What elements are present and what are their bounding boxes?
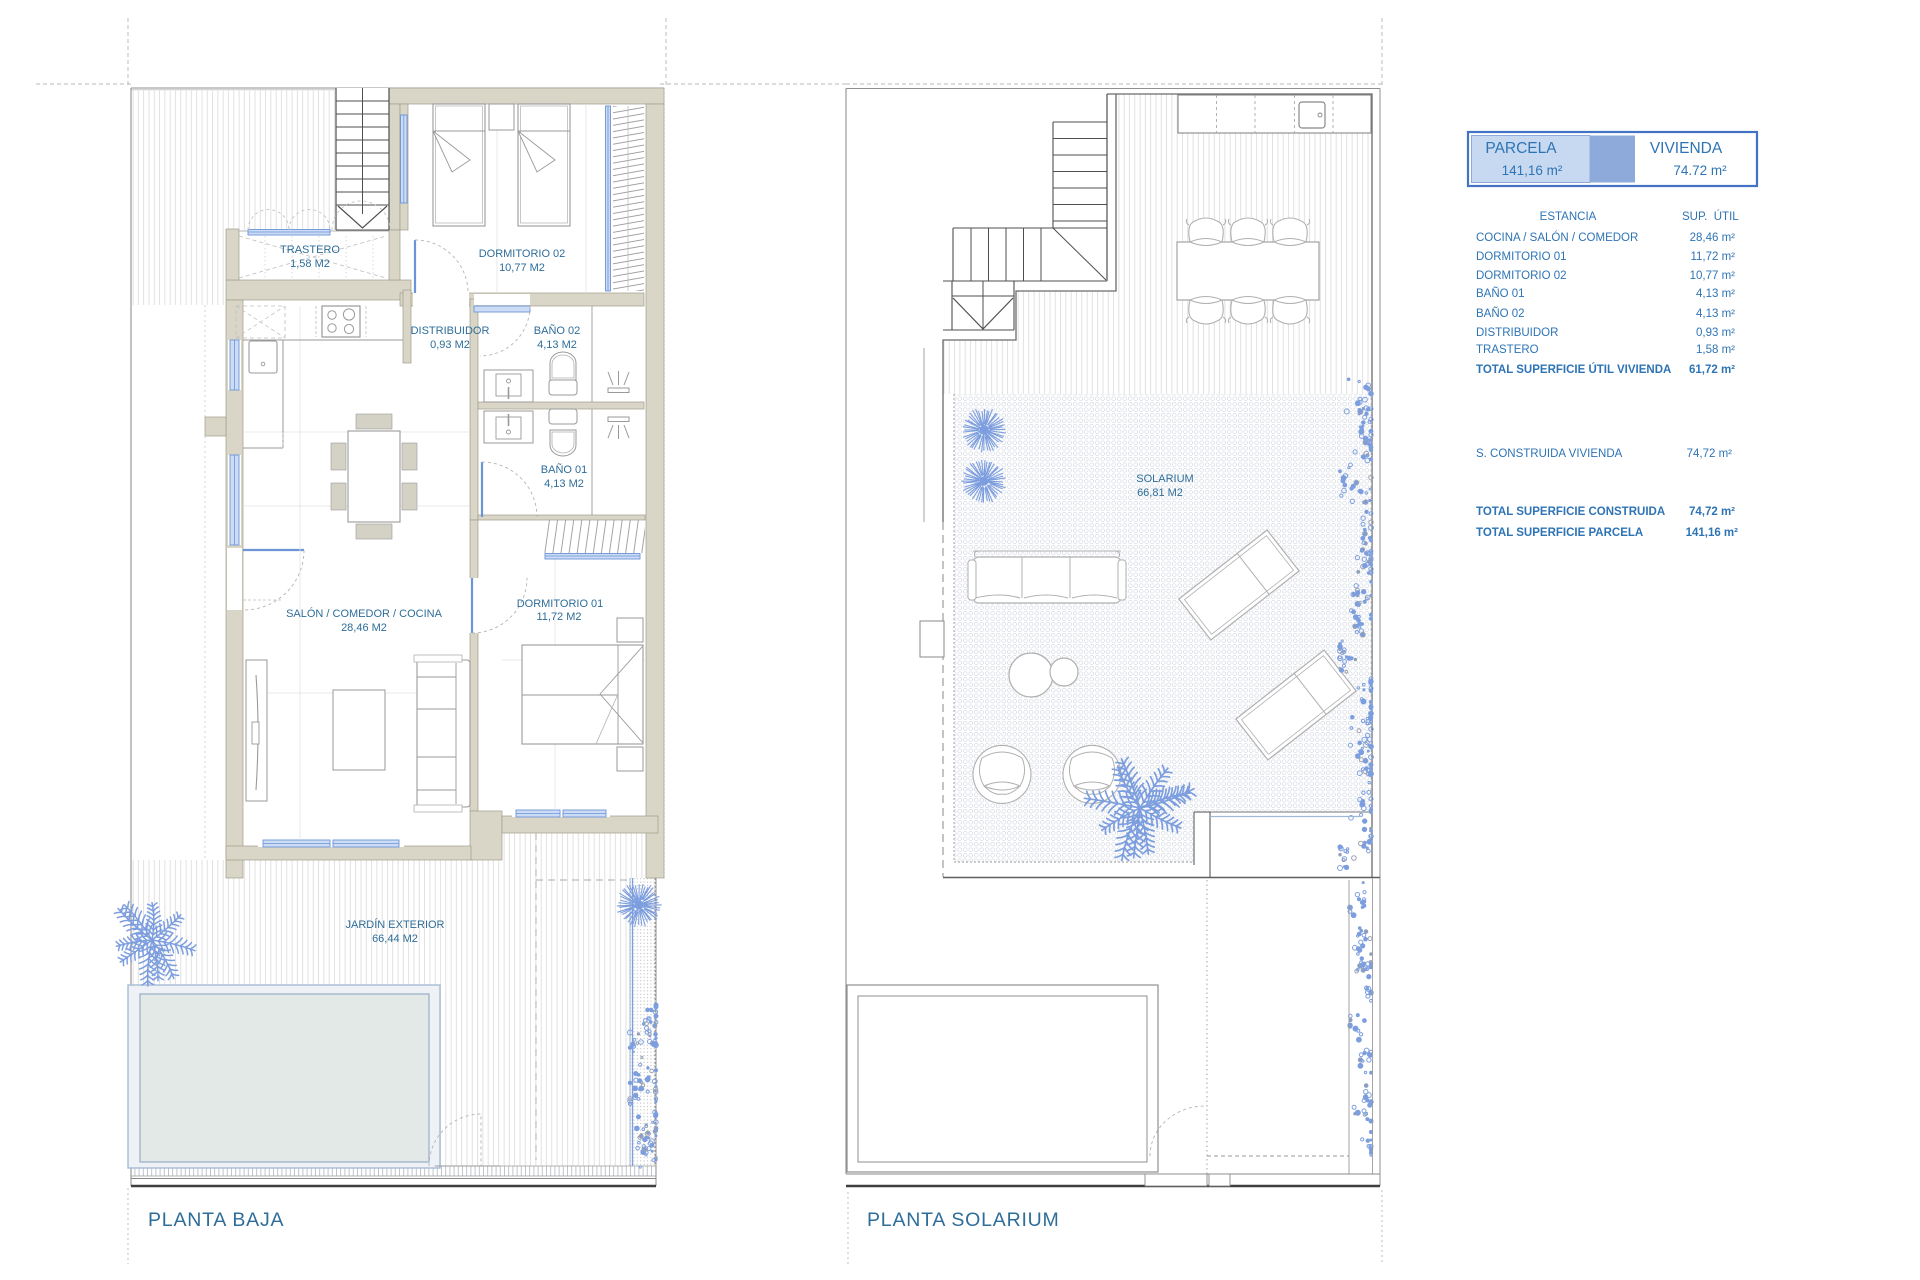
svg-text:BAÑO 02: BAÑO 02: [1476, 307, 1525, 320]
svg-text:DISTRIBUIDOR: DISTRIBUIDOR: [1476, 327, 1558, 339]
svg-text:COCINA / SALÓN / COMEDOR: COCINA / SALÓN / COMEDOR: [1476, 231, 1638, 244]
svg-text:JARDÍN EXTERIOR: JARDÍN EXTERIOR: [345, 918, 444, 931]
svg-text:S. CONSTRUIDA VIVIENDA: S. CONSTRUIDA VIVIENDA: [1476, 448, 1623, 460]
svg-text:DORMITORIO 02: DORMITORIO 02: [1476, 270, 1567, 282]
svg-text:BAÑO 01: BAÑO 01: [541, 463, 587, 476]
svg-text:BAÑO 02: BAÑO 02: [534, 324, 580, 337]
svg-text:TOTAL SUPERFICIE CONSTRUIDA: TOTAL SUPERFICIE CONSTRUIDA: [1476, 506, 1665, 518]
svg-text:4,13 M2: 4,13 M2: [537, 339, 577, 351]
svg-text:141,16 m²: 141,16 m²: [1502, 163, 1563, 178]
svg-text:11,72 M2: 11,72 M2: [536, 611, 581, 623]
svg-text:61,72 m²: 61,72 m²: [1689, 364, 1735, 376]
svg-text:TRASTERO: TRASTERO: [1476, 344, 1539, 356]
svg-text:28,46 M2: 28,46 M2: [341, 622, 387, 634]
svg-text:DORMITORIO 01: DORMITORIO 01: [1476, 251, 1567, 263]
svg-text:SOLARIUM: SOLARIUM: [1136, 473, 1193, 485]
svg-text:TRASTERO: TRASTERO: [280, 244, 340, 256]
svg-text:11,72 m²: 11,72 m²: [1690, 251, 1735, 263]
svg-text:SUP. ÚTIL: SUP. ÚTIL: [1682, 210, 1739, 223]
svg-text:DORMITORIO 01: DORMITORIO 01: [517, 598, 604, 610]
svg-text:74,72 m²: 74,72 m²: [1687, 448, 1733, 460]
svg-text:TOTAL SUPERFICIE ÚTIL VIVIENDA: TOTAL SUPERFICIE ÚTIL VIVIENDA: [1476, 363, 1671, 376]
svg-text:4,13 m²: 4,13 m²: [1696, 308, 1735, 320]
svg-text:0,93 m²: 0,93 m²: [1696, 327, 1735, 339]
svg-text:DISTRIBUIDOR: DISTRIBUIDOR: [411, 325, 490, 337]
svg-text:0,93 M2: 0,93 M2: [430, 339, 470, 351]
svg-text:TOTAL SUPERFICIE PARCELA: TOTAL SUPERFICIE PARCELA: [1476, 527, 1643, 539]
svg-text:4,13 m²: 4,13 m²: [1696, 288, 1735, 300]
svg-text:66,44 M2: 66,44 M2: [372, 933, 418, 945]
svg-text:PLANTA SOLARIUM: PLANTA SOLARIUM: [867, 1209, 1060, 1231]
svg-text:PLANTA BAJA: PLANTA BAJA: [148, 1209, 284, 1231]
svg-text:4,13 M2: 4,13 M2: [544, 478, 584, 490]
svg-text:DORMITORIO 02: DORMITORIO 02: [479, 248, 566, 260]
svg-text:141,16 m²: 141,16 m²: [1686, 527, 1739, 539]
svg-text:ESTANCIA: ESTANCIA: [1540, 211, 1597, 223]
svg-text:74,72 m²: 74,72 m²: [1689, 506, 1735, 518]
svg-text:74.72 m²: 74.72 m²: [1673, 163, 1727, 178]
svg-text:PARCELA: PARCELA: [1485, 140, 1557, 157]
svg-text:28,46 m²: 28,46 m²: [1690, 232, 1736, 244]
svg-text:BAÑO 01: BAÑO 01: [1476, 287, 1525, 300]
svg-text:1,58 M2: 1,58 M2: [290, 258, 330, 270]
svg-text:10,77 m²: 10,77 m²: [1690, 270, 1736, 282]
svg-text:1,58 m²: 1,58 m²: [1696, 344, 1735, 356]
svg-text:VIVIENDA: VIVIENDA: [1650, 140, 1723, 157]
svg-text:SALÓN / COMEDOR / COCINA: SALÓN / COMEDOR / COCINA: [286, 607, 443, 620]
svg-text:66,81 M2: 66,81 M2: [1137, 487, 1183, 499]
svg-text:10,77 M2: 10,77 M2: [499, 262, 545, 274]
